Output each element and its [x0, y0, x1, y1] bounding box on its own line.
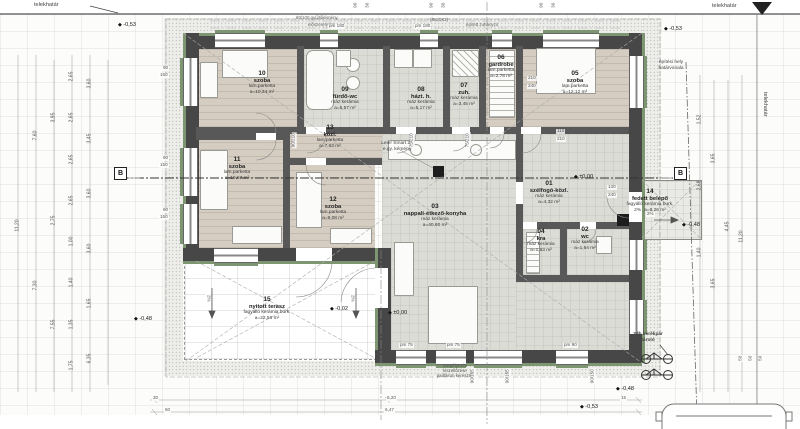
- dim-label: 11,20: [740, 230, 745, 242]
- window-room08-top: [420, 33, 438, 48]
- dim-label: 2%: [206, 294, 211, 303]
- door-gap-12: [306, 158, 326, 165]
- dim-label: 90: [353, 2, 358, 9]
- dim-label: 90: [429, 2, 434, 9]
- room-label-11: 11 szoba lam.parketta a=10,67 m²: [203, 156, 271, 182]
- furniture-washer-08: [394, 49, 413, 68]
- floor-living-right: [516, 282, 629, 350]
- gravel-band-top: [164, 18, 662, 33]
- dim-label: 3,45: [87, 134, 92, 144]
- dim-label: 150: [159, 73, 169, 78]
- top-utility-note-4: épített zuhanyzó: [466, 22, 498, 27]
- dim-label: 90: [162, 156, 169, 161]
- terrace-door-living: [375, 268, 388, 308]
- telekhatar-label-right: telekhatár: [762, 92, 768, 117]
- dim-column-left-2: 7,607,30: [30, 60, 42, 360]
- wall-09-08: [383, 46, 390, 134]
- dim-label: 240: [527, 84, 537, 89]
- room-area: a=7,63 m²: [296, 144, 364, 150]
- dim-label: 6,20: [386, 396, 397, 401]
- dim-label: 240: [607, 193, 617, 198]
- room-area: a=1,54 m²: [564, 246, 606, 252]
- dim-label: 90/165: [506, 368, 511, 384]
- room-number: 11: [203, 156, 271, 164]
- window-room11-terrace: [214, 248, 258, 263]
- room-label-13: 13 közl. lam.parketta a=7,63 m²: [296, 124, 364, 150]
- dim-label: 90: [162, 66, 169, 71]
- window-room09-top: [320, 33, 338, 48]
- dim-label: 7,30: [33, 280, 38, 290]
- dim-label: 90: [539, 2, 544, 9]
- room-area: a=9,08 m²: [300, 216, 366, 222]
- elevation-marker: -0,02: [330, 306, 348, 312]
- dim-label: pm 180: [328, 24, 345, 29]
- furniture-sofa-03: [394, 242, 414, 296]
- furniture-kitchen-hob: [470, 144, 482, 156]
- dim-label: 1,52: [697, 114, 702, 124]
- dim-label: 2%: [350, 294, 355, 303]
- room-area: a=1,83 m²: [522, 248, 560, 254]
- window-room11-left-lower: [183, 204, 198, 244]
- dim-label: 150: [159, 163, 169, 168]
- elevation-marker: -0,48: [134, 316, 152, 322]
- room-area: a=2,78 m²: [470, 74, 532, 80]
- dim-label: 7,60: [33, 130, 38, 140]
- window-kitchen-bottom: [556, 350, 588, 365]
- room-area: a=5,17 m²: [393, 106, 449, 112]
- section-marker-b-right: B: [674, 167, 687, 180]
- dim-column-left-3: 3,952,757,55: [48, 66, 60, 376]
- window-room05-top: [543, 33, 599, 48]
- room-area: a=40,80 m²: [385, 223, 485, 229]
- dim-label: 110: [556, 129, 565, 134]
- room-area: a=4,32 m²: [514, 200, 584, 206]
- dim-label: 6,47: [384, 408, 395, 413]
- section-marker-b-left: B: [114, 167, 127, 180]
- edge-vent-note: szegélyezés kiszellőzése padláson keresz…: [410, 363, 500, 378]
- dim-label: pm 75: [399, 343, 414, 348]
- dim-label: pm 75: [446, 343, 461, 348]
- room-number: 08: [393, 86, 449, 94]
- dim-label: 30: [441, 2, 446, 9]
- dim-column-left-4: 2,652,652,652,651,001,401,351,75: [66, 56, 78, 386]
- dim-label: 30: [551, 2, 556, 9]
- wall-10-09: [297, 46, 304, 134]
- window-room10-left: [183, 58, 198, 106]
- room-number: 04: [522, 228, 560, 236]
- dim-label: pm 180: [414, 24, 431, 29]
- wall-13-12: [283, 158, 382, 165]
- furniture-desk-10: [200, 62, 218, 98]
- dim-label: 4,45: [725, 221, 730, 231]
- telekhatar-label-top-right: telekhatár: [712, 3, 737, 9]
- room-label-05: 05 szoba lam.parketta a=12,12 m²: [540, 70, 610, 96]
- dim-label: 2,65: [69, 72, 74, 82]
- dim-label: 30: [365, 2, 370, 9]
- room-label-04: 04 kra máz kerámia a=1,83 m²: [522, 228, 560, 254]
- window-room02-right: [629, 240, 644, 270]
- room-label-15: 15 nyitott terasz fagyálló kerámia burk.…: [232, 296, 302, 322]
- room-label-14: 14 fedett belépő fagyálló kerámia burk. …: [612, 188, 688, 214]
- dim-label: 6,35: [87, 354, 92, 364]
- dim-label: 90/210: [292, 132, 297, 148]
- dim-label: 1,75: [69, 361, 74, 371]
- elevation-marker: ±0,00: [574, 174, 593, 180]
- dim-label: 1,40: [697, 248, 702, 258]
- window-room11-left-upper: [183, 148, 198, 196]
- dim-label: 2,68: [697, 181, 702, 191]
- room-number: 10: [228, 70, 296, 78]
- elevation-marker: -0,53: [664, 26, 682, 32]
- dim-column-left-1: 11,20: [12, 60, 24, 390]
- window-room05-right: [629, 56, 644, 108]
- window-room10-top: [215, 33, 265, 48]
- room-number: 13: [296, 124, 364, 132]
- top-utility-note-1: 60/100 gyűjtőkémény: [296, 15, 338, 20]
- dim-label: 50: [748, 355, 753, 362]
- room-label-08: 08 házt. h. máz kerámia a=5,17 m²: [393, 86, 449, 112]
- dim-column-right-2: 3,653,65: [708, 96, 720, 346]
- elevation-marker: -0,48: [682, 222, 700, 228]
- chimney-note: Leier Smart 20 e.gy. kémény: [368, 141, 426, 152]
- window-living-right: [629, 300, 644, 334]
- room-area: a=10,67 m²: [203, 176, 271, 182]
- dim-label: pm 90: [563, 343, 578, 348]
- dim-label: 90/150: [591, 368, 596, 384]
- room-number: 05: [540, 70, 610, 78]
- room-number: 14: [612, 188, 688, 196]
- room-number: 01: [514, 180, 584, 188]
- room-number: 02: [564, 226, 606, 234]
- dim-label: 50: [738, 355, 743, 362]
- furniture-dryer-08: [413, 49, 432, 68]
- dim-label: 1,40: [69, 278, 74, 288]
- furniture-wardrobe-12: [330, 228, 372, 244]
- room-number: 06: [470, 54, 532, 62]
- furniture-dining-table: [428, 286, 478, 344]
- dim-label: 1,00: [69, 237, 74, 247]
- chimney-block: [433, 166, 444, 177]
- dim-label: 1,65: [87, 299, 92, 309]
- room-label-03: 03 nappali-étkező-konyha máz kerámia a=4…: [385, 203, 485, 229]
- dim-label: 3,65: [711, 154, 716, 164]
- dim-label: 7,55: [51, 319, 56, 329]
- dim-label: 1,35: [69, 319, 74, 329]
- dim-label: 2,65: [69, 196, 74, 206]
- entry-column-block: [617, 214, 629, 226]
- dim-column-right-1: 1,522,681,40: [694, 86, 706, 286]
- floor-plan-sheet: 01 szélfogó-közl. máz kerámia a=4,32 m² …: [0, 0, 800, 429]
- wall-11-12: [283, 133, 290, 248]
- dim-label: 3,60: [87, 189, 92, 199]
- dim-label: 90/165: [471, 368, 476, 384]
- dim-label: 15: [620, 396, 627, 401]
- room-label-10: 10 szoba lam.parketta a=10,34 m²: [228, 70, 296, 96]
- window-room06-top: [492, 33, 512, 48]
- furniture-wardrobe-11: [232, 226, 282, 244]
- dim-label: 3,60: [87, 244, 92, 254]
- room-label-12: 12 szoba lam.parketta a=9,08 m²: [300, 196, 366, 222]
- dim-label: 50: [758, 355, 763, 362]
- dim-label: 90: [162, 208, 169, 213]
- room-label-02: 02 wc máz kerámia a=1,54 m²: [564, 226, 606, 252]
- dim-label: 11,20: [16, 219, 21, 231]
- dim-label: 2%: [646, 212, 655, 217]
- door-gap-05: [521, 127, 541, 134]
- dim-label: 3,95: [51, 113, 56, 123]
- top-utility-note-3: (BU/1X2): [430, 17, 448, 22]
- room-slope: 2%: [634, 208, 641, 213]
- wall-0204-living: [516, 275, 629, 282]
- dim-label: 210: [527, 76, 537, 81]
- elevation-marker: -0,53: [118, 22, 136, 28]
- dim-label: 75/210: [466, 132, 471, 148]
- dim-label: 2,75: [51, 216, 56, 226]
- dim-column-right-3: 4,45: [722, 96, 734, 356]
- dim-label: 210: [556, 137, 566, 142]
- elevation-marker: ±0,00: [388, 310, 407, 316]
- room-label-06: 06 gardrobe lam.parketta a=2,78 m²: [470, 54, 532, 80]
- telekhatar-leader: [90, 6, 118, 13]
- room-area: a=12,12 m²: [540, 90, 610, 96]
- door-gap-06: [490, 127, 504, 134]
- bike-storage-label: 2db kerékpár tároló: [622, 332, 674, 343]
- room-number: 03: [385, 203, 485, 211]
- dim-column-left-5: 3,603,453,603,601,656,35: [84, 56, 96, 386]
- room-number: 09: [316, 86, 374, 94]
- room-area: a=22,56 m²: [232, 316, 302, 322]
- room-area: a=10,34 m²: [228, 90, 296, 96]
- elevation-marker: -0,53: [580, 404, 598, 410]
- elevation-marker: -0,48: [616, 386, 634, 392]
- dim-label: 3,65: [711, 279, 716, 289]
- boundary-corner-triangle: [752, 2, 772, 15]
- furniture-wc-09: [336, 50, 351, 67]
- terrace-door-room12: [296, 248, 332, 261]
- dim-label: 130: [607, 185, 617, 190]
- room-number: 15: [232, 296, 302, 304]
- room-number: 12: [300, 196, 366, 204]
- telekhatar-label-top-left: telekhatár: [34, 2, 59, 8]
- dim-label: 2,65: [69, 154, 74, 164]
- dim-column-right-4: 11,20: [736, 86, 748, 386]
- dim-label: 60: [164, 408, 171, 413]
- dim-label: 75/210: [410, 132, 415, 148]
- dim-label: 2,65: [69, 113, 74, 123]
- dim-label: 3,60: [87, 79, 92, 89]
- dim-label: 150: [159, 215, 169, 220]
- room-area: a=5,57 m²: [316, 106, 374, 112]
- dim-label: 30: [152, 396, 159, 401]
- door-gap-11: [256, 133, 276, 140]
- room-label-01: 01 szélfogó-közl. máz kerámia a=4,32 m²: [514, 180, 584, 206]
- room-label-09: 09 fürdő-wc máz kerámia a=5,57 m²: [316, 86, 374, 112]
- building-limit-label: építési hely határvonala: [648, 60, 694, 71]
